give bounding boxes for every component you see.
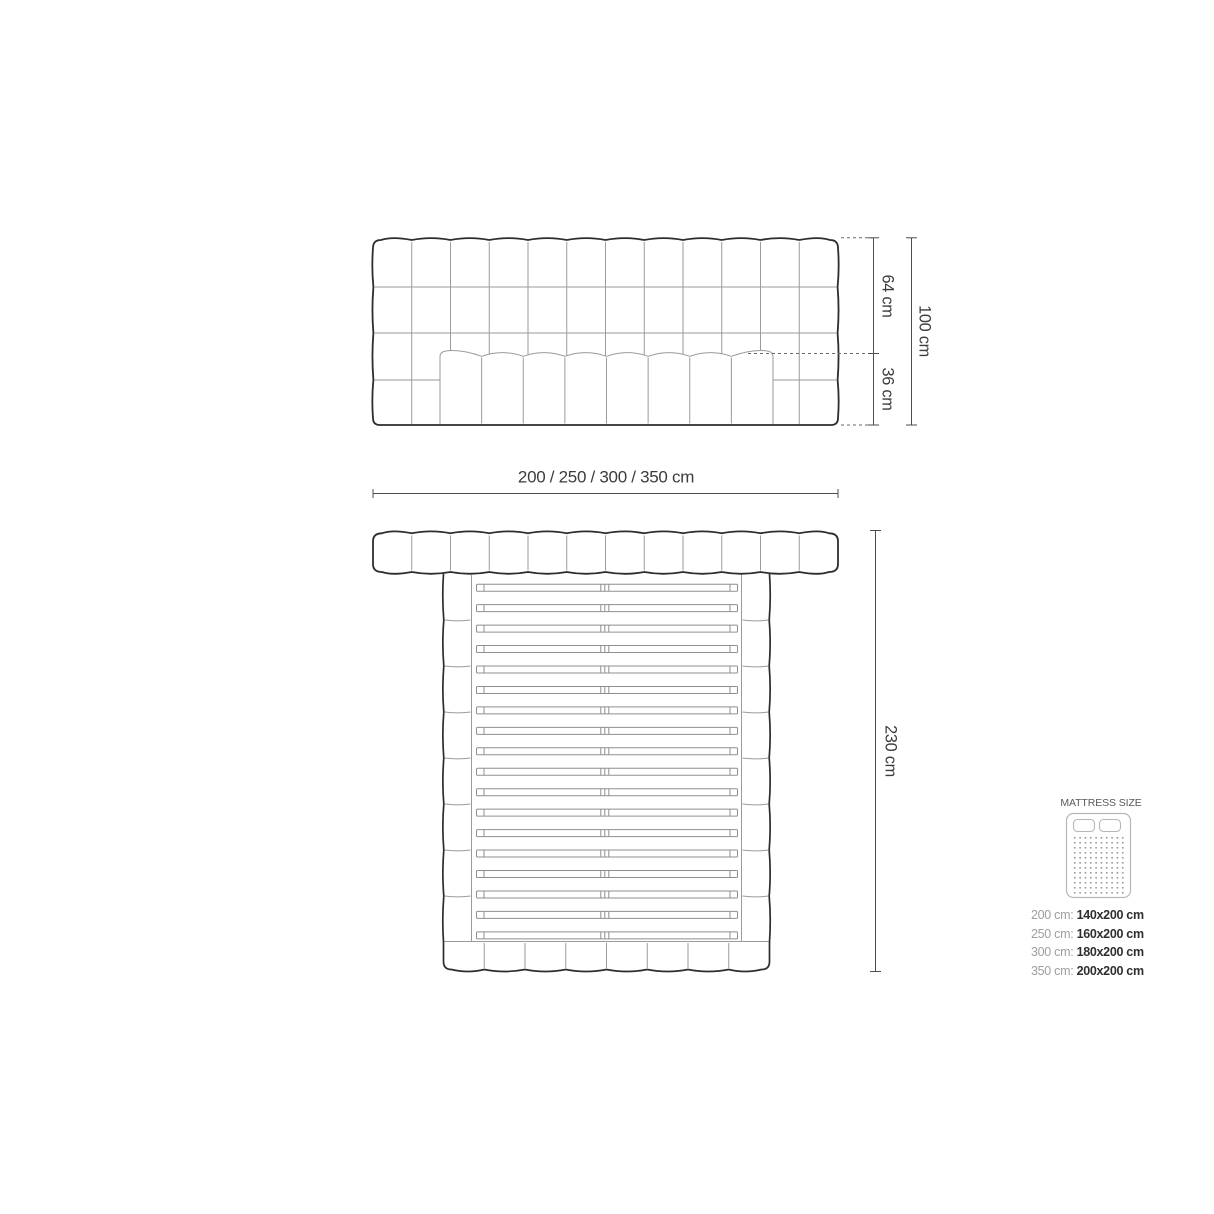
mattress-dot (1085, 867, 1087, 869)
bed-technical-drawing-page: 64 cm 36 cm 100 cm 200 / 250 / 300 / 350… (0, 0, 1214, 1214)
mattress-dot (1085, 892, 1087, 894)
mattress-dot (1074, 882, 1076, 884)
mattress-dot (1090, 877, 1092, 879)
slat (477, 809, 738, 816)
mattress-dot (1095, 872, 1097, 874)
mattress-size-legend: 200 cm: 140x200 cm 250 cm: 160x200 cm 30… (1031, 906, 1144, 980)
mattress-dot (1116, 842, 1118, 844)
mattress-dot (1079, 882, 1081, 884)
slat-body (477, 707, 738, 714)
legend-size-label: 200 cm: (1031, 908, 1073, 922)
plan-headboard-bar (373, 531, 838, 573)
pillow-icon (1074, 820, 1095, 832)
dimension-label-width: 200 / 250 / 300 / 350 cm (518, 469, 694, 486)
mattress-dot (1106, 857, 1108, 859)
mattress-dot (1079, 847, 1081, 849)
legend-size-value: 180x200 cm (1077, 945, 1144, 959)
slat (477, 625, 738, 632)
legend-row: 250 cm: 160x200 cm (1031, 925, 1144, 944)
mattress-dot (1079, 872, 1081, 874)
slat (477, 850, 738, 857)
plan-view (373, 531, 838, 971)
legend-row: 200 cm: 140x200 cm (1031, 906, 1144, 925)
slat (477, 707, 738, 714)
mattress-dot (1116, 882, 1118, 884)
mattress-dot (1122, 837, 1124, 839)
mattress-dot (1122, 847, 1124, 849)
mattress-dot (1095, 847, 1097, 849)
front-view (372, 238, 872, 425)
slat-body (477, 809, 738, 816)
slat-body (477, 727, 738, 734)
mattress-dot (1079, 887, 1081, 889)
slat-body (477, 871, 738, 878)
mattress-dot (1085, 862, 1087, 864)
bed-diagram (0, 0, 1214, 1214)
mattress-dot (1116, 877, 1118, 879)
mattress-dot (1095, 877, 1097, 879)
mattress-dot (1106, 867, 1108, 869)
mattress-dot (1085, 852, 1087, 854)
mattress-dot (1111, 862, 1113, 864)
mattress-dot (1111, 842, 1113, 844)
mattress-dot (1074, 887, 1076, 889)
mattress-dot (1090, 842, 1092, 844)
mattress-dot (1095, 852, 1097, 854)
mattress-dot (1101, 892, 1103, 894)
mattress-dot (1122, 892, 1124, 894)
mattress-size-legend-title: MATTRESS SIZE (1060, 798, 1141, 809)
slat (477, 666, 738, 673)
mattress-dot (1101, 857, 1103, 859)
mattress-dot (1095, 892, 1097, 894)
mattress-dot (1122, 872, 1124, 874)
mattress-dot (1079, 842, 1081, 844)
slat (477, 584, 738, 591)
mattress-dot (1095, 842, 1097, 844)
mattress-dot (1116, 862, 1118, 864)
mattress-dot (1090, 867, 1092, 869)
mattress-dot (1101, 872, 1103, 874)
slat-body (477, 666, 738, 673)
mattress-dot (1116, 857, 1118, 859)
mattress-dot (1122, 882, 1124, 884)
legend-size-label: 250 cm: (1031, 927, 1073, 941)
slat (477, 932, 738, 939)
mattress-dot (1074, 857, 1076, 859)
mattress-dot (1106, 872, 1108, 874)
slat (477, 768, 738, 775)
mattress-dot (1106, 852, 1108, 854)
mattress-dot (1122, 842, 1124, 844)
mattress-dot (1074, 862, 1076, 864)
mattress-dot (1111, 877, 1113, 879)
mattress-dot (1095, 867, 1097, 869)
mattress-dot (1106, 892, 1108, 894)
mattress-dot (1074, 867, 1076, 869)
slat (477, 646, 738, 653)
pillow-icon (1100, 820, 1121, 832)
slat (477, 871, 738, 878)
mattress-dot (1074, 847, 1076, 849)
slat (477, 789, 738, 796)
slat-body (477, 932, 738, 939)
slat-body (477, 748, 738, 755)
mattress-dot (1085, 847, 1087, 849)
mattress-dot (1111, 882, 1113, 884)
mattress-dot (1074, 842, 1076, 844)
slat (477, 686, 738, 693)
mattress-dot (1106, 847, 1108, 849)
mattress-dot (1090, 857, 1092, 859)
mattress-dot (1074, 852, 1076, 854)
slat-body (477, 768, 738, 775)
mattress-dot (1101, 847, 1103, 849)
mattress-dot (1106, 862, 1108, 864)
mattress-size-icon (1067, 814, 1131, 898)
mattress-dot (1085, 872, 1087, 874)
mattress-dot (1122, 852, 1124, 854)
mattress-dot (1101, 887, 1103, 889)
mattress-dot (1085, 882, 1087, 884)
slat-body (477, 646, 738, 653)
mattress-dot (1106, 842, 1108, 844)
mattress-dot (1090, 852, 1092, 854)
mattress-dot (1079, 867, 1081, 869)
mattress-dot (1116, 887, 1118, 889)
mattress-dot (1122, 862, 1124, 864)
mattress-dot (1101, 862, 1103, 864)
slat-body (477, 789, 738, 796)
mattress-dot (1090, 837, 1092, 839)
dimension-label-upper-height: 64 cm (880, 274, 897, 317)
mattress-dot (1090, 862, 1092, 864)
mattress-dot (1116, 852, 1118, 854)
slat (477, 605, 738, 612)
legend-size-value: 140x200 cm (1077, 908, 1144, 922)
mattress-dot (1074, 872, 1076, 874)
mattress-dot (1116, 837, 1118, 839)
legend-size-value: 160x200 cm (1077, 927, 1144, 941)
slat (477, 911, 738, 918)
mattress-dot (1079, 862, 1081, 864)
slat (477, 727, 738, 734)
slat-body (477, 830, 738, 837)
mattress-dot (1090, 882, 1092, 884)
mattress-dot (1074, 877, 1076, 879)
mattress-dot (1111, 887, 1113, 889)
mattress-dot (1122, 867, 1124, 869)
mattress-dot (1116, 867, 1118, 869)
mattress-dot (1079, 892, 1081, 894)
mattress-dot (1116, 872, 1118, 874)
mattress-dot (1085, 857, 1087, 859)
mattress-dot (1079, 857, 1081, 859)
mattress-dot (1090, 872, 1092, 874)
mattress-dot (1122, 857, 1124, 859)
mattress-dot (1111, 852, 1113, 854)
mattress-dot (1111, 837, 1113, 839)
mattress-dot (1116, 847, 1118, 849)
mattress-dot (1111, 872, 1113, 874)
mattress-dot (1111, 857, 1113, 859)
mattress-dot (1101, 867, 1103, 869)
legend-row: 350 cm: 200x200 cm (1031, 962, 1144, 981)
mattress-dot (1095, 857, 1097, 859)
mattress-dot (1122, 877, 1124, 879)
slat-body (477, 850, 738, 857)
mattress-dot (1111, 847, 1113, 849)
legend-size-value: 200x200 cm (1077, 964, 1144, 978)
mattress-dot (1095, 887, 1097, 889)
mattress-dot (1106, 877, 1108, 879)
mattress-dot (1079, 852, 1081, 854)
legend-size-label: 300 cm: (1031, 945, 1073, 959)
slat-body (477, 584, 738, 591)
mattress-dot (1085, 837, 1087, 839)
slat-body (477, 911, 738, 918)
slat-body (477, 625, 738, 632)
mattress-dot (1090, 847, 1092, 849)
mattress-dot (1095, 882, 1097, 884)
mattress-dot (1074, 837, 1076, 839)
mattress-dot (1101, 877, 1103, 879)
mattress-dot (1111, 867, 1113, 869)
mattress-dot (1122, 887, 1124, 889)
mattress-dot (1074, 892, 1076, 894)
mattress-dot (1095, 862, 1097, 864)
dimension-label-lower-height: 36 cm (880, 367, 897, 410)
mattress-dot (1079, 837, 1081, 839)
dimension-label-total-height: 100 cm (917, 305, 934, 357)
mattress-dot (1090, 887, 1092, 889)
slat-body (477, 686, 738, 693)
mattress-dot (1079, 877, 1081, 879)
mattress-dot (1101, 842, 1103, 844)
mattress-dot (1095, 837, 1097, 839)
mattress-dot (1116, 892, 1118, 894)
mattress-dot (1106, 887, 1108, 889)
slat-body (477, 891, 738, 898)
slat (477, 891, 738, 898)
mattress-dot (1101, 852, 1103, 854)
legend-row: 300 cm: 180x200 cm (1031, 943, 1144, 962)
mattress-dot (1106, 882, 1108, 884)
mattress-dot (1111, 892, 1113, 894)
slat (477, 830, 738, 837)
slat (477, 748, 738, 755)
legend-size-label: 350 cm: (1031, 964, 1073, 978)
mattress-dot (1085, 887, 1087, 889)
slat-body (477, 605, 738, 612)
mattress-dot (1090, 892, 1092, 894)
mattress-dot (1101, 882, 1103, 884)
mattress-dot (1085, 877, 1087, 879)
mattress-dot (1106, 837, 1108, 839)
mattress-dot (1085, 842, 1087, 844)
dimension-label-length: 230 cm (883, 725, 900, 777)
mattress-dot (1101, 837, 1103, 839)
